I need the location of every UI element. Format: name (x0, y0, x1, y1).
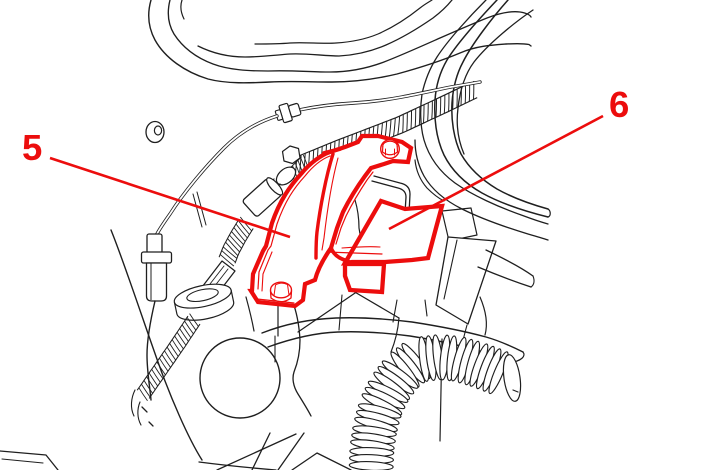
svg-text:5: 5 (22, 127, 42, 168)
svg-text:6: 6 (609, 84, 629, 125)
